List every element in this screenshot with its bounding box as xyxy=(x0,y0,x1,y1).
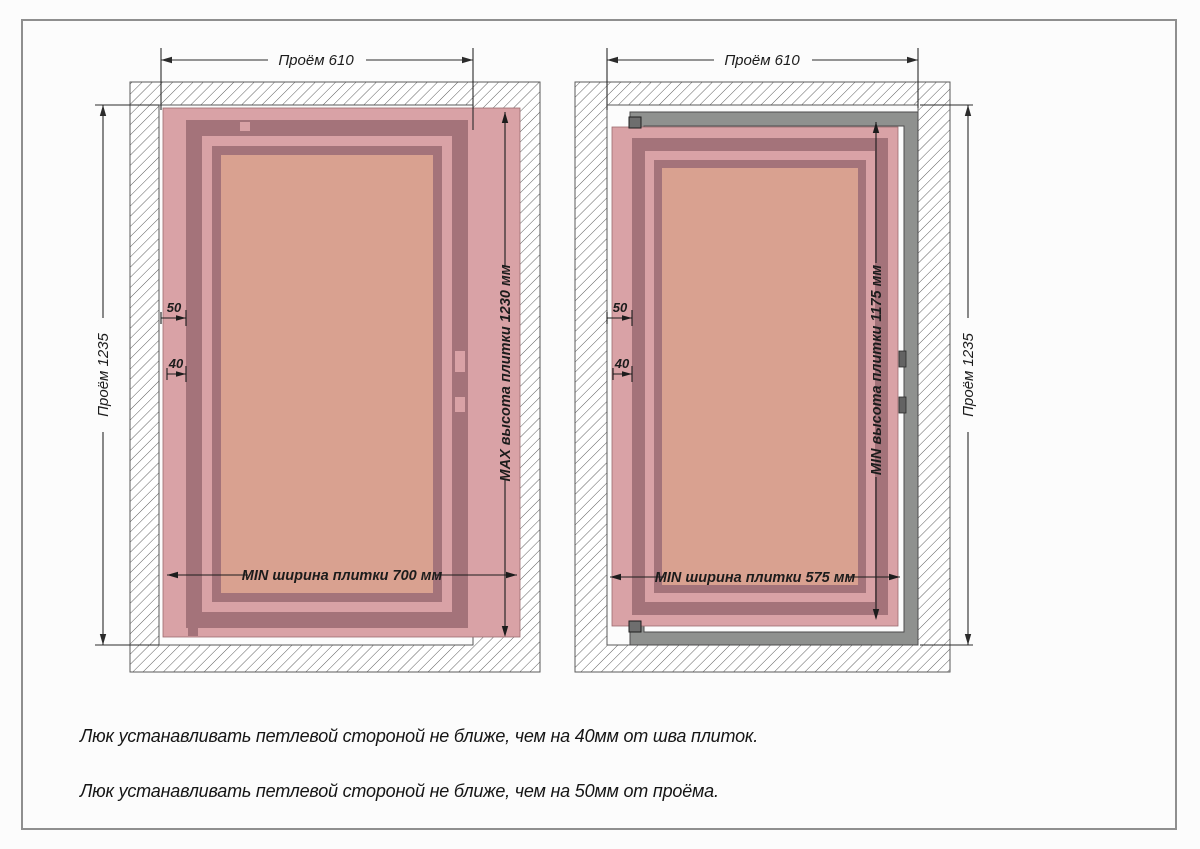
right-latch-bottom xyxy=(899,397,906,413)
right-dim-tile-height-label: MIN высота плитки 1175 мм xyxy=(869,265,885,475)
right-dim-offset-opening-label: 50 xyxy=(613,300,628,315)
note-opening-offset: Люк устанавливать петлевой стороной не б… xyxy=(80,781,719,802)
right-tile-field xyxy=(662,168,858,585)
right-hinge-top xyxy=(629,117,641,128)
left-tile-field xyxy=(221,155,433,593)
left-dim-tile-width-label: MIN ширина плитки 700 мм xyxy=(242,568,443,584)
right-hinge-bottom xyxy=(629,621,641,632)
left-hinge-bottom xyxy=(188,628,198,636)
left-dim-offset-seam-label: 40 xyxy=(168,356,184,371)
right-latch-top xyxy=(899,351,906,367)
left-dim-offset-opening-label: 50 xyxy=(167,300,182,315)
right-drawing: Проём 610 Проём 1235 MIN высота плитки 1… xyxy=(575,48,977,672)
left-dim-opening-width-label: Проём 610 xyxy=(278,52,354,69)
right-dim-offset-seam-label: 40 xyxy=(614,356,630,371)
left-latch-bottom xyxy=(455,397,465,412)
left-dim-opening-height-label: Проём 1235 xyxy=(95,332,112,416)
left-latch-top xyxy=(455,351,465,372)
right-dim-opening-height-label: Проём 1235 xyxy=(960,332,977,416)
right-dim-opening-width-label: Проём 610 xyxy=(724,52,800,69)
drawing-sheet: Проём 610 Проём 1235 MAX высота плитки 1… xyxy=(0,0,1200,849)
right-dim-tile-width-label: MIN ширина плитки 575 мм xyxy=(655,570,856,586)
note-seam-offset: Люк устанавливать петлевой стороной не б… xyxy=(80,726,758,747)
left-hinge-top xyxy=(240,122,250,131)
left-dim-tile-height-label: MAX высота плитки 1230 мм xyxy=(498,264,514,481)
hatch-installation-diagram: Проём 610 Проём 1235 MAX высота плитки 1… xyxy=(0,0,1200,849)
left-drawing: Проём 610 Проём 1235 MAX высота плитки 1… xyxy=(95,48,540,672)
